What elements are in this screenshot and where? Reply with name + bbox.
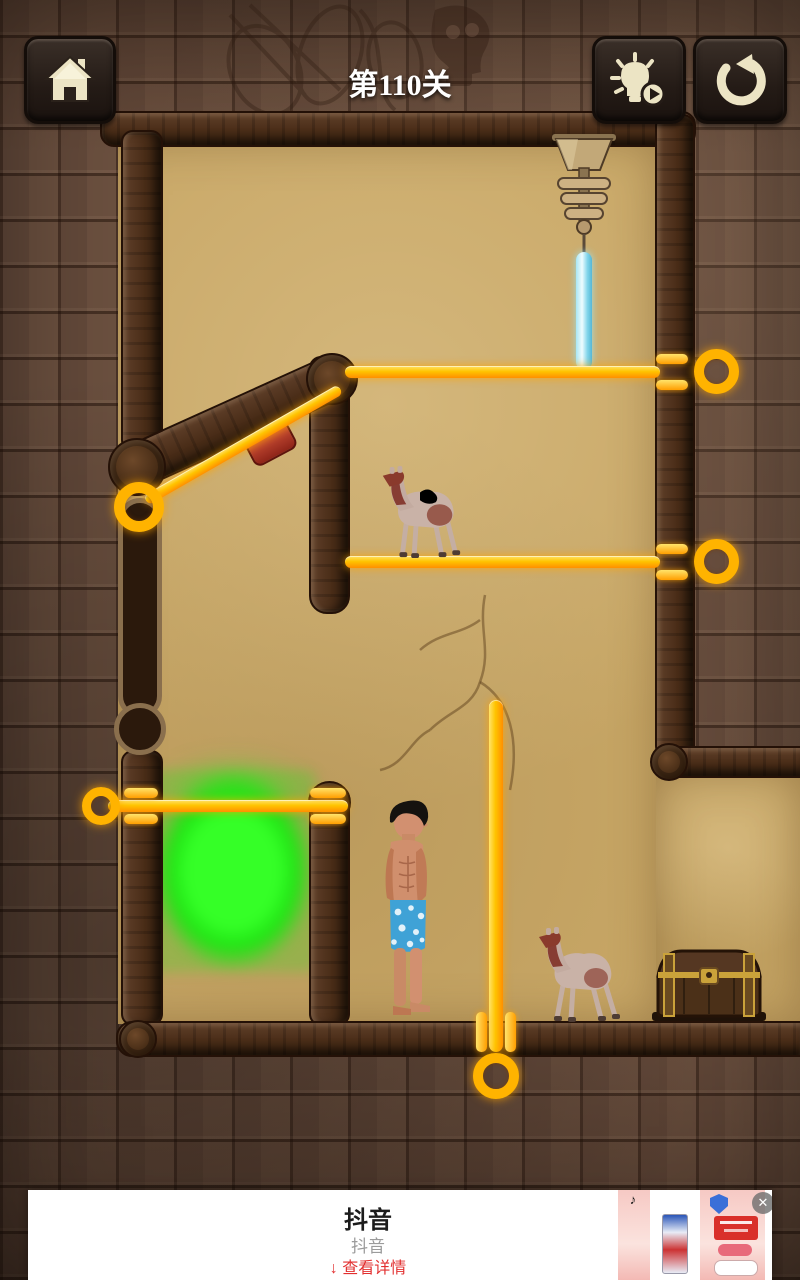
restart-arrow-icon (712, 52, 768, 108)
right-wall-post (655, 114, 695, 758)
restart-button[interactable] (693, 36, 787, 124)
lightbulb-play-icon (610, 52, 668, 108)
pin-acid-bracket-r2 (310, 814, 346, 824)
ad-cta-label: 查看详情 (342, 1260, 406, 1277)
ice-beam (576, 252, 592, 370)
pin-floor-bar[interactable] (489, 700, 503, 1052)
pin-top-bracket-upper (656, 354, 688, 364)
ad-app-name: 抖音 (128, 1200, 608, 1235)
pin-acid-bracket-r1 (310, 788, 346, 798)
hint-button[interactable] (592, 36, 686, 124)
download-arrow-icon: ↓ (330, 1260, 338, 1277)
close-icon: ✕ (758, 1195, 769, 1211)
ad-banner[interactable]: 抖音 抖音 ↓ 查看详情 ♪ ✕ (28, 1190, 772, 1280)
ad-small-button (718, 1244, 752, 1256)
upper-camel (370, 466, 470, 560)
right-ledge-cap (650, 743, 688, 781)
ad-promo-block (714, 1216, 758, 1240)
ad-cta-link[interactable]: ↓ 查看详情 (128, 1254, 608, 1278)
left-wall-post (121, 130, 163, 452)
ad-product-box (662, 1214, 688, 1274)
ad-thumbnail[interactable]: ♪ (618, 1190, 765, 1280)
floor-cap (119, 1020, 157, 1058)
tiktok-note-icon: ♪ (618, 1192, 648, 1208)
game-screen: 第110关 抖音 抖音 ↓ 查看详情 ♪ (0, 0, 800, 1280)
pin-floor-bracket-right (505, 1012, 516, 1052)
pin-diagonal-ring[interactable] (114, 482, 164, 532)
pin-acid-bracket-l2 (124, 814, 158, 824)
shield-badge-icon (710, 1194, 728, 1214)
ad-pill-button (714, 1260, 758, 1276)
pin-acid-bracket-l1 (124, 788, 158, 798)
pin-floor-ring[interactable] (473, 1053, 519, 1099)
pin-camel-ring[interactable] (694, 539, 739, 584)
pin-acid-ring[interactable] (82, 787, 120, 825)
floor-beam (116, 1021, 800, 1057)
lower-camel (527, 927, 627, 1023)
ad-close-button[interactable]: ✕ (752, 1192, 772, 1214)
treasure-chest (650, 946, 768, 1024)
hanging-cutter-device (548, 134, 620, 260)
pin-top-ring[interactable] (694, 349, 739, 394)
pin-top-bracket-lower (656, 380, 688, 390)
pin-camel-bracket-lower (656, 570, 688, 580)
pin-floor-bracket-left (476, 1012, 487, 1052)
pin-top-bar[interactable] (345, 366, 660, 378)
pin-camel-bracket-upper (656, 544, 688, 554)
pin-acid-bar[interactable] (108, 800, 348, 812)
pendulum-weight (114, 703, 166, 755)
hero-man (366, 796, 452, 1024)
